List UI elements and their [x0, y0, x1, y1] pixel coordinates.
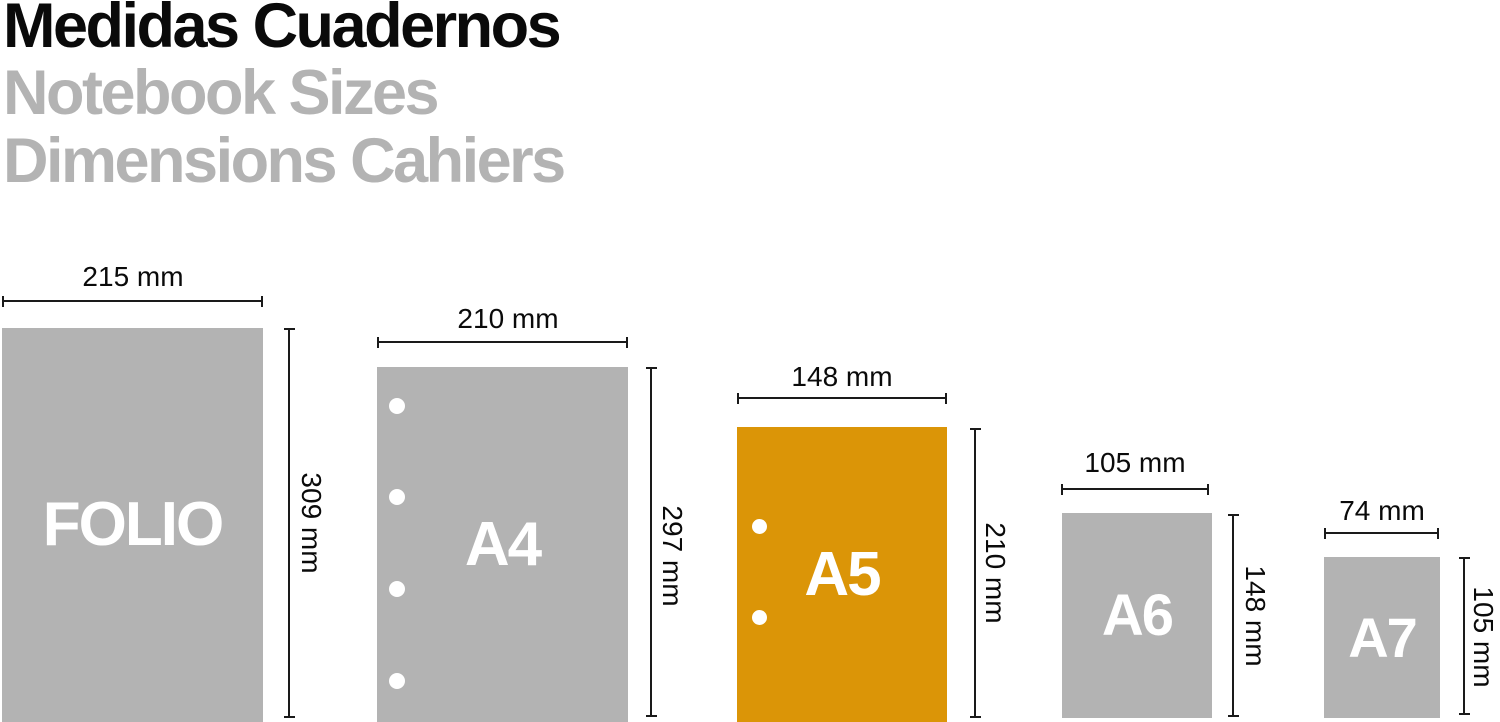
a7-height-dimension-line	[1463, 557, 1465, 715]
dimension-tick	[626, 337, 628, 348]
a5-height-label: 210 mm	[981, 522, 1009, 623]
a5-sheet-highlighted: A5	[737, 427, 947, 722]
folio-width-label: 215 mm	[82, 263, 183, 291]
folio-height-dimension-line	[288, 328, 290, 718]
dimension-tick	[1459, 713, 1470, 715]
a7-height-label: 105 mm	[1469, 586, 1497, 687]
dimension-tick	[970, 428, 981, 430]
a5-width-label: 148 mm	[791, 363, 892, 391]
a7-sheet: A7	[1324, 557, 1440, 718]
a5-height-dimension-line	[974, 428, 976, 718]
folio-sheet-label: FOLIO	[43, 494, 222, 556]
folio-sheet: FOLIO	[2, 328, 263, 722]
dimension-tick	[970, 716, 981, 718]
dimension-tick	[377, 337, 379, 348]
binding-hole	[752, 610, 767, 625]
a6-height-dimension-line	[1232, 514, 1234, 717]
dimension-tick	[1324, 528, 1326, 539]
dimension-tick	[1228, 715, 1239, 717]
a4-height-label: 297 mm	[658, 505, 686, 606]
a4-width-label: 210 mm	[457, 305, 558, 333]
dimension-tick	[261, 296, 263, 307]
dimension-tick	[1459, 557, 1470, 559]
dimension-tick	[1207, 484, 1209, 495]
a4-height-dimension-line	[650, 367, 652, 717]
dimension-tick	[646, 715, 657, 717]
dimension-tick	[284, 328, 295, 330]
a7-width-label: 74 mm	[1339, 497, 1425, 525]
a5-sheet-label: A5	[804, 544, 879, 606]
dimension-tick	[1437, 528, 1439, 539]
a5-width-dimension-line	[737, 397, 947, 399]
page-title-french: Dimensions Cahiers	[3, 130, 564, 193]
a6-sheet: A6	[1062, 513, 1212, 718]
binding-hole	[389, 581, 405, 597]
page-title-english: Notebook Sizes	[3, 62, 437, 125]
notebook-sizes-diagram: Medidas Cuadernos Notebook Sizes Dimensi…	[0, 0, 1500, 722]
dimension-tick	[646, 367, 657, 369]
page-title-spanish: Medidas Cuadernos	[3, 0, 559, 58]
dimension-tick	[1061, 484, 1063, 495]
a6-height-label: 148 mm	[1241, 565, 1269, 666]
folio-height-label: 309 mm	[297, 472, 325, 573]
dimension-tick	[737, 393, 739, 404]
a4-sheet-label: A4	[465, 514, 540, 576]
a7-sheet-label: A7	[1348, 610, 1416, 666]
folio-width-dimension-line	[2, 300, 263, 302]
dimension-tick	[1228, 514, 1239, 516]
dimension-tick	[945, 393, 947, 404]
a6-width-label: 105 mm	[1084, 449, 1185, 477]
a4-sheet: A4	[377, 367, 628, 722]
binding-hole	[752, 519, 767, 534]
dimension-tick	[2, 296, 4, 307]
a4-width-dimension-line	[377, 341, 628, 343]
binding-hole	[389, 398, 405, 414]
a7-width-dimension-line	[1324, 532, 1439, 534]
dimension-tick	[284, 716, 295, 718]
binding-hole	[389, 489, 405, 505]
binding-hole	[389, 673, 405, 689]
a6-sheet-label: A6	[1102, 587, 1172, 645]
a6-width-dimension-line	[1061, 488, 1209, 490]
